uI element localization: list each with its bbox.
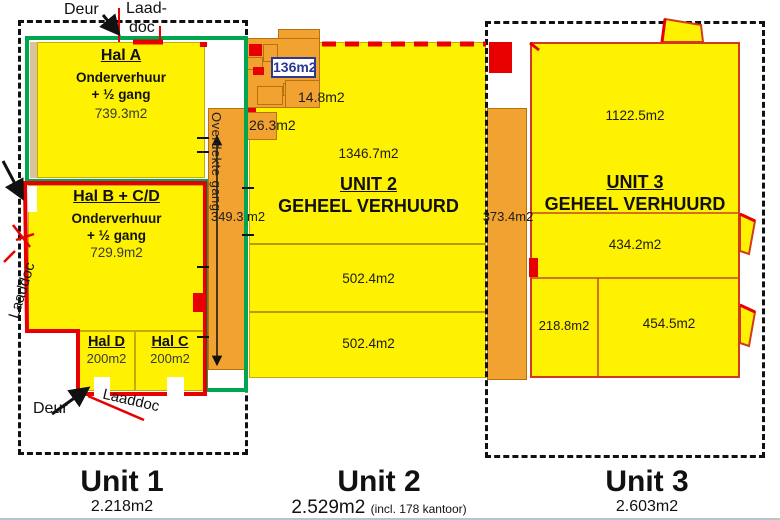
- unit2-office-small-area: 14.8m2: [298, 89, 350, 105]
- office-red-tick: [246, 108, 256, 112]
- deur-bottom-label: Deur: [33, 400, 68, 418]
- footer-unit3: Unit 3 2.603m2: [557, 466, 737, 516]
- hal-a-title: Hal A: [37, 46, 205, 66]
- unit2-status: GEHEEL VERHUURD: [252, 196, 485, 217]
- unit3-mid-area: 434.2m2: [530, 237, 740, 252]
- hal-a-area: 739.3m2: [37, 105, 205, 122]
- unit2-office-front-area: 26.3m2: [249, 117, 309, 133]
- gang-name-label: Overdekte gang: [209, 112, 224, 282]
- floorplan: 136m2: [0, 0, 780, 520]
- hal-bcd-area: 729.9m2: [28, 244, 205, 261]
- hal-a-sub2: + ½ gang: [37, 86, 205, 103]
- unit3-bottom-left-area: 218.8m2: [530, 318, 598, 333]
- footer-unit2-note: (incl. 178 kantoor): [371, 502, 467, 516]
- hal-bcd-sub2: + ½ gang: [28, 227, 205, 244]
- footer-unit2: Unit 2 2.529m2 (incl. 178 kantoor): [269, 466, 489, 519]
- unit2-top-right-red-box: [489, 42, 512, 73]
- office-large-room-area: 136m2: [273, 59, 317, 75]
- hal-bcd-title: Hal B + C/D: [28, 187, 205, 207]
- footer-unit1-area: 2.218m2: [32, 498, 212, 516]
- footer-unit1-name: Unit 1: [32, 466, 212, 498]
- hal-bcd-sub1: Onderverhuur: [28, 210, 205, 227]
- unit2-top-section-area: 1346.7m2: [252, 146, 485, 161]
- footer-unit2-name: Unit 2: [269, 466, 489, 498]
- footer-unit2-area: 2.529m2: [291, 497, 365, 518]
- hal-c-area: 200m2: [135, 351, 205, 367]
- laaddoc-top-label-line2: doc: [129, 19, 155, 37]
- hal-b-red-door-box: [193, 293, 205, 312]
- unit3-label: UNIT 3: [530, 172, 740, 193]
- hal-c-labels: Hal C 200m2: [135, 333, 205, 367]
- office-red-box-1: [249, 44, 262, 56]
- hal-a-labels: Hal A Onderverhuur + ½ gang 739.3m2: [37, 46, 205, 122]
- hal-a-sub1: Onderverhuur: [37, 69, 205, 86]
- unit3-status: GEHEEL VERHUURD: [530, 194, 740, 215]
- unit3-left-red-box: [529, 258, 538, 277]
- hal-bcd-labels: Hal B + C/D Onderverhuur + ½ gang 729.9m…: [28, 187, 205, 261]
- laaddoc-top-label-line1: Laad-: [126, 0, 167, 18]
- footer-unit1: Unit 1 2.218m2: [32, 466, 212, 516]
- unit3-main-area: 1122.5m2: [530, 108, 740, 123]
- footer-unit3-area: 2.603m2: [557, 498, 737, 516]
- hal-d-area: 200m2: [78, 351, 135, 367]
- unit2-mid-section-area: 502.4m2: [252, 271, 485, 286]
- office-red-box-2: [253, 67, 264, 75]
- hal-d-title: Hal D: [78, 333, 135, 351]
- gang-area-label: 349.3 m2: [208, 209, 268, 224]
- footer-unit3-name: Unit 3: [557, 466, 737, 498]
- unit3-corridor-area: 373.4m2: [482, 209, 534, 224]
- office-room-box-3: [257, 86, 283, 105]
- hal-c-title: Hal C: [135, 333, 205, 351]
- unit2-label: UNIT 2: [252, 174, 485, 195]
- office-large-room-label: 136m2: [271, 57, 316, 78]
- hal-d-labels: Hal D 200m2: [78, 333, 135, 367]
- deur-top-label: Deur: [64, 1, 99, 19]
- unit3-bottom-right-area: 454.5m2: [598, 316, 740, 331]
- unit2-bottom-section-area: 502.4m2: [252, 336, 485, 351]
